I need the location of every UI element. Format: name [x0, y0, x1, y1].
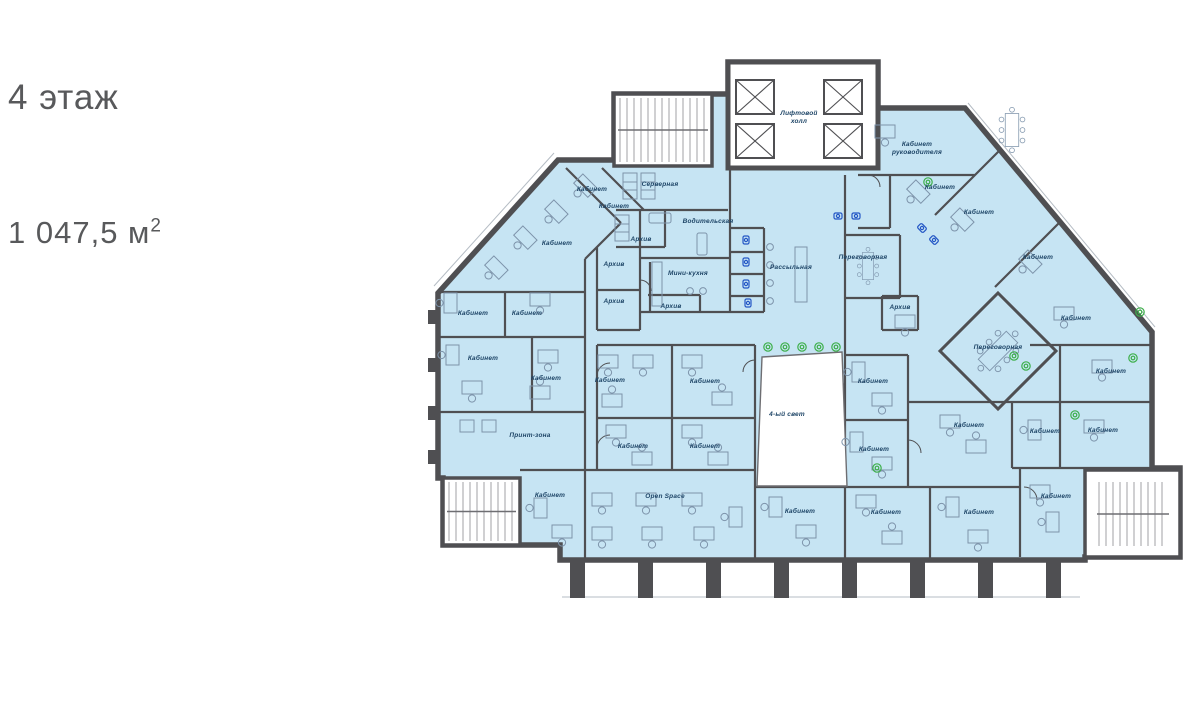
room-label: Принт-зона	[509, 432, 550, 439]
room-label: Кабинет	[1041, 492, 1071, 500]
room-label: Кабинет	[785, 507, 815, 515]
room-label: Кабинет	[1061, 314, 1091, 322]
room-label: Кабинет	[925, 183, 955, 191]
room-label: Кабинет	[1030, 427, 1060, 435]
room-label: Open Space	[645, 493, 685, 500]
room-label: Архив	[629, 236, 651, 243]
room-label: Кабинет	[577, 185, 607, 193]
room-label: Кабинет	[1096, 367, 1126, 375]
room-label: Кабинет	[542, 239, 572, 247]
room-label: Кабинет	[871, 508, 901, 516]
room-label: Архив	[659, 303, 681, 310]
room-label: Кабинет	[964, 208, 994, 216]
room-label: Мини-кухня	[668, 270, 708, 277]
room-label: Рассыльная	[770, 264, 812, 271]
room-label: Кабинет	[618, 442, 648, 450]
floor-plan-svg: ЛифтовойхоллКабинетруководителяКабинетКа…	[0, 0, 1184, 709]
room-label: Кабинет	[859, 445, 889, 453]
room-label: Серверная	[642, 181, 679, 188]
room-label: Кабинет	[964, 508, 994, 516]
room-label: Кабинет	[1088, 426, 1118, 434]
room-label: Кабинет	[954, 421, 984, 429]
room-label: Кабинет	[595, 376, 625, 384]
room-label: Кабинет	[599, 202, 629, 210]
room-label: Архив	[602, 261, 624, 268]
room-label: Кабинет	[690, 377, 720, 385]
room-label: Кабинет	[690, 442, 720, 450]
room-label: 4-ый свет	[768, 410, 805, 418]
stair-bottom-left	[443, 478, 520, 545]
room-label: Кабинет	[535, 491, 565, 499]
stair-bottom-right	[1085, 470, 1180, 557]
room-label: Архив	[602, 298, 624, 305]
room-label: Кабинет	[1023, 253, 1053, 261]
room-label: Переговорная	[839, 254, 888, 261]
floor-plan: ЛифтовойхоллКабинетруководителяКабинетКа…	[0, 0, 1184, 709]
room-label: Кабинет	[512, 309, 542, 317]
stair-top-left	[614, 94, 712, 166]
room-label: Кабинет	[531, 374, 561, 382]
room-label: Кабинет	[458, 309, 488, 317]
room-label: Кабинет	[468, 354, 498, 362]
room-label: Кабинет	[858, 377, 888, 385]
room-label: Водительская	[683, 217, 734, 225]
room-label: Архив	[888, 304, 910, 311]
atrium-void	[757, 352, 847, 486]
room-label: Переговорная	[974, 344, 1023, 351]
